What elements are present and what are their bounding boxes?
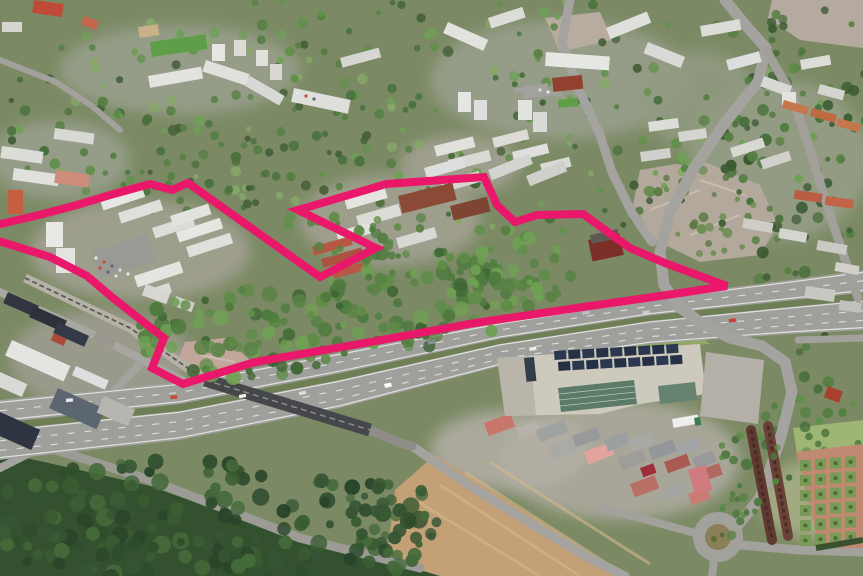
east-road-1 <box>798 338 863 340</box>
roundabout-south-road <box>712 560 714 576</box>
aerial-image <box>0 0 863 576</box>
screenshot-root <box>0 0 863 576</box>
